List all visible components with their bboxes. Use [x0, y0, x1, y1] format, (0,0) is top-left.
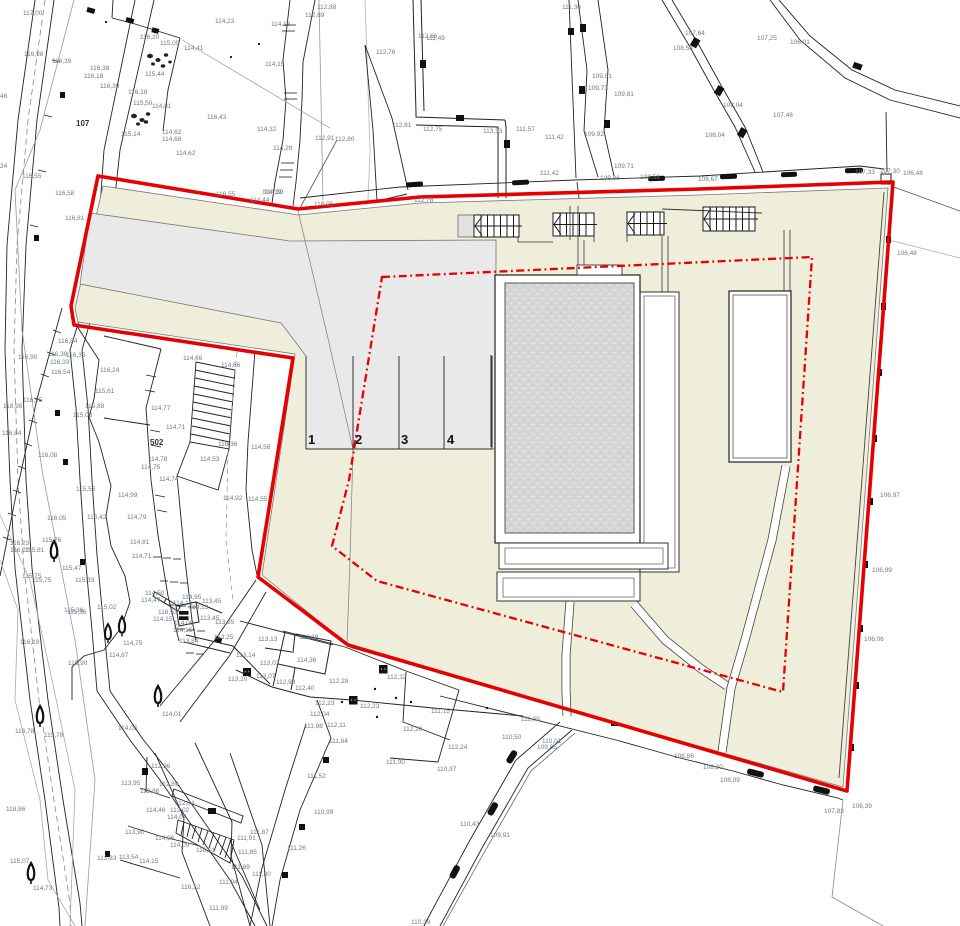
svg-text:115,33: 115,33 [75, 577, 95, 584]
svg-text:46: 46 [0, 93, 8, 100]
svg-text:114,41: 114,41 [184, 45, 204, 52]
svg-text:114,36: 114,36 [297, 657, 317, 664]
svg-text:4: 4 [447, 432, 455, 447]
svg-text:114,55: 114,55 [248, 496, 268, 503]
svg-text:118,05: 118,05 [314, 201, 334, 208]
svg-text:111,94: 111,94 [219, 879, 238, 886]
svg-text:116,36: 116,36 [218, 441, 238, 448]
svg-text:106,99: 106,99 [872, 567, 892, 574]
svg-text:111,89: 111,89 [231, 864, 250, 871]
svg-text:115,90: 115,90 [68, 660, 88, 667]
svg-text:111,42: 111,42 [540, 170, 559, 177]
svg-text:114,78: 114,78 [148, 456, 168, 463]
svg-text:114,32: 114,32 [257, 126, 277, 133]
svg-text:112,11: 112,11 [327, 722, 346, 729]
svg-text:116,53: 116,53 [158, 609, 178, 616]
svg-text:114,71: 114,71 [166, 424, 186, 431]
svg-text:116,19: 116,19 [20, 639, 40, 646]
svg-text:109,73: 109,73 [588, 85, 608, 92]
svg-text:116,42: 116,42 [87, 514, 107, 521]
svg-text:116,58: 116,58 [55, 190, 75, 197]
svg-text:114,81: 114,81 [152, 103, 172, 110]
svg-text:112,91: 112,91 [315, 135, 335, 142]
svg-text:116,39: 116,39 [48, 351, 68, 358]
svg-text:106,48: 106,48 [897, 250, 917, 257]
svg-text:112,86: 112,86 [140, 788, 160, 795]
svg-text:113,95: 113,95 [121, 780, 141, 787]
svg-text:114,47: 114,47 [141, 597, 161, 604]
svg-text:110,99: 110,99 [314, 809, 334, 816]
svg-text:116,38: 116,38 [90, 65, 110, 72]
svg-text:114,15: 114,15 [153, 616, 173, 623]
svg-text:116,24: 116,24 [100, 367, 120, 374]
svg-text:107,33: 107,33 [855, 169, 875, 176]
svg-text:114,01: 114,01 [162, 711, 182, 718]
svg-text:106,48: 106,48 [903, 170, 923, 177]
svg-text:116,98: 116,98 [24, 51, 44, 58]
svg-text:111,52: 111,52 [307, 773, 326, 780]
svg-text:115,81: 115,81 [25, 547, 45, 554]
svg-text:114,13: 114,13 [271, 21, 291, 28]
svg-text:114,74: 114,74 [159, 476, 179, 483]
svg-text:1: 1 [308, 432, 315, 447]
svg-text:116,08: 116,08 [38, 452, 58, 459]
svg-text:114,77: 114,77 [151, 405, 171, 412]
svg-text:116,95: 116,95 [23, 397, 43, 404]
svg-text:107: 107 [76, 119, 90, 128]
svg-text:107,83: 107,83 [824, 808, 844, 815]
svg-text:115,75: 115,75 [22, 573, 42, 580]
svg-text:114,75: 114,75 [141, 464, 161, 471]
svg-text:106,97: 106,97 [880, 492, 900, 499]
svg-text:114,58: 114,58 [251, 444, 271, 451]
svg-text:116,33: 116,33 [50, 359, 70, 366]
svg-text:115,44: 115,44 [145, 71, 165, 78]
svg-text:114,92: 114,92 [223, 495, 243, 502]
svg-text:114,87: 114,87 [109, 652, 129, 659]
svg-text:115,07: 115,07 [10, 858, 30, 865]
svg-text:107,30: 107,30 [880, 168, 900, 175]
svg-text:115,47: 115,47 [62, 565, 82, 572]
svg-text:112,24: 112,24 [448, 744, 468, 751]
svg-text:112,20: 112,20 [403, 726, 423, 733]
svg-text:111,15: 111,15 [431, 708, 450, 715]
svg-text:109,85: 109,85 [537, 744, 557, 751]
svg-text:107,25: 107,25 [757, 35, 777, 42]
svg-text:113,07: 113,07 [256, 673, 276, 680]
svg-text:112,88: 112,88 [317, 4, 337, 11]
svg-text:113,54: 113,54 [119, 854, 139, 861]
svg-text:111,84: 111,84 [329, 738, 348, 745]
svg-text:112,96: 112,96 [151, 763, 171, 770]
svg-text:116,55: 116,55 [22, 173, 42, 180]
svg-text:114,53: 114,53 [200, 456, 220, 463]
svg-text:115,61: 115,61 [95, 388, 115, 395]
svg-text:116,84: 116,84 [2, 430, 22, 437]
svg-text:116,01: 116,01 [196, 847, 216, 854]
svg-text:116,78: 116,78 [15, 728, 35, 735]
svg-text:106,39: 106,39 [852, 803, 872, 810]
svg-text:113,84: 113,84 [179, 638, 199, 645]
svg-text:114,46: 114,46 [146, 807, 166, 814]
svg-text:114,75: 114,75 [123, 640, 143, 647]
svg-text:115,88: 115,88 [85, 403, 105, 410]
svg-text:111,26: 111,26 [287, 845, 306, 852]
svg-text:111,98: 111,98 [304, 723, 323, 730]
svg-text:113,83: 113,83 [97, 855, 117, 862]
svg-text:110,97: 110,97 [437, 766, 457, 773]
svg-text:109,81: 109,81 [614, 91, 634, 98]
svg-text:108,20: 108,20 [703, 764, 723, 771]
svg-text:110,50: 110,50 [502, 734, 522, 741]
svg-text:107,64: 107,64 [685, 30, 705, 37]
svg-text:116,35: 116,35 [66, 352, 86, 359]
svg-text:111,57: 111,57 [516, 126, 535, 133]
svg-text:111,09: 111,09 [521, 716, 540, 723]
svg-text:114,44: 114,44 [250, 197, 270, 204]
svg-text:114,15: 114,15 [139, 858, 159, 865]
svg-text:502: 502 [150, 438, 164, 447]
svg-text:116,43: 116,43 [207, 114, 227, 121]
svg-text:111,00: 111,00 [386, 759, 405, 766]
svg-text:109,81: 109,81 [592, 73, 612, 80]
svg-text:109,91: 109,91 [490, 832, 510, 839]
svg-text:115,02: 115,02 [97, 604, 117, 611]
svg-text:115,03: 115,03 [73, 412, 93, 419]
svg-text:115,53: 115,53 [76, 486, 96, 493]
svg-text:113,20: 113,20 [228, 676, 248, 683]
svg-text:112,02: 112,02 [170, 807, 190, 814]
svg-text:116,55: 116,55 [216, 191, 236, 198]
svg-text:112,89: 112,89 [305, 12, 325, 19]
svg-text:108,09: 108,09 [720, 777, 740, 784]
svg-text:24: 24 [0, 163, 8, 170]
svg-text:114,07: 114,07 [167, 814, 187, 821]
svg-text:115,14: 115,14 [121, 131, 141, 138]
svg-text:111,85: 111,85 [238, 849, 257, 856]
svg-text:106,01: 106,01 [790, 39, 810, 46]
svg-text:111,30: 111,30 [562, 4, 581, 11]
svg-text:114,38: 114,38 [299, 634, 319, 641]
svg-text:116,54: 116,54 [51, 369, 71, 376]
svg-text:113,25: 113,25 [214, 634, 234, 641]
svg-text:114,99: 114,99 [118, 492, 138, 499]
svg-text:116,84: 116,84 [58, 338, 78, 345]
svg-text:116,81: 116,81 [65, 215, 85, 222]
svg-text:114,73: 114,73 [33, 885, 53, 892]
svg-text:116,20: 116,20 [140, 34, 160, 41]
svg-text:116,12: 116,12 [181, 884, 201, 891]
svg-text:114,15: 114,15 [265, 61, 285, 68]
svg-text:113,25: 113,25 [215, 619, 235, 626]
svg-text:108,58: 108,58 [673, 45, 693, 52]
svg-text:112,75: 112,75 [423, 126, 443, 133]
svg-text:112,23: 112,23 [315, 700, 335, 707]
svg-text:114,29: 114,29 [273, 145, 293, 152]
svg-text:109,71: 109,71 [614, 163, 634, 170]
svg-text:112,78: 112,78 [414, 197, 434, 204]
svg-text:116,23: 116,23 [10, 540, 30, 547]
svg-text:112,40: 112,40 [295, 685, 315, 692]
svg-text:113,14: 113,14 [236, 652, 256, 659]
svg-text:116,39: 116,39 [100, 83, 120, 90]
svg-text:116,05: 116,05 [47, 515, 67, 522]
svg-text:109,86: 109,86 [600, 175, 620, 182]
svg-text:112,80: 112,80 [335, 136, 355, 143]
svg-text:108,67: 108,67 [698, 176, 718, 183]
svg-text:115,36: 115,36 [64, 607, 84, 614]
svg-text:115,09: 115,09 [160, 40, 180, 47]
svg-text:107,48: 107,48 [773, 112, 793, 119]
svg-text:114,15: 114,15 [173, 627, 193, 634]
svg-text:116,18: 116,18 [84, 73, 104, 80]
svg-text:112,04: 112,04 [175, 800, 195, 807]
svg-text:114,09: 114,09 [170, 842, 190, 849]
svg-text:114,71: 114,71 [132, 553, 152, 560]
svg-text:115,78: 115,78 [44, 732, 64, 739]
svg-text:111,42: 111,42 [545, 134, 564, 141]
svg-text:114,39: 114,39 [264, 189, 284, 196]
svg-text:112,81: 112,81 [392, 122, 412, 129]
svg-text:114,13: 114,13 [189, 604, 209, 611]
svg-text:112,89: 112,89 [159, 781, 179, 788]
svg-text:112,28: 112,28 [329, 678, 349, 685]
svg-text:112,23: 112,23 [360, 703, 380, 710]
svg-text:112,98: 112,98 [276, 679, 296, 686]
svg-text:118,86: 118,86 [6, 806, 26, 813]
svg-text:108,04: 108,04 [723, 102, 743, 109]
svg-text:113,03: 113,03 [260, 660, 280, 667]
svg-text:114,66: 114,66 [221, 362, 241, 369]
svg-text:108,04: 108,04 [705, 132, 725, 139]
svg-text:117,00: 117,00 [23, 10, 43, 17]
svg-text:115,76: 115,76 [42, 537, 62, 544]
svg-text:112,04: 112,04 [310, 711, 330, 718]
svg-text:114,62: 114,62 [176, 150, 196, 157]
svg-text:114,50: 114,50 [145, 590, 165, 597]
svg-text:114,08: 114,08 [174, 620, 194, 627]
svg-text:114,68: 114,68 [162, 136, 182, 143]
svg-text:115,50: 115,50 [133, 100, 153, 107]
svg-text:2: 2 [355, 432, 362, 447]
svg-text:118,98: 118,98 [3, 403, 23, 410]
svg-text:111,99: 111,99 [209, 905, 228, 912]
svg-text:114,79: 114,79 [127, 514, 147, 521]
svg-text:114,62: 114,62 [162, 129, 182, 136]
svg-text:109,92: 109,92 [584, 131, 604, 138]
svg-text:111,91: 111,91 [237, 835, 256, 842]
svg-text:111,80: 111,80 [252, 871, 271, 878]
svg-text:108,86: 108,86 [674, 753, 694, 760]
svg-text:114,81: 114,81 [130, 539, 150, 546]
svg-text:110,39: 110,39 [411, 919, 431, 926]
svg-text:116,90: 116,90 [18, 354, 38, 361]
svg-text:3: 3 [401, 432, 408, 447]
svg-text:113,90: 113,90 [125, 829, 145, 836]
svg-text:116,39: 116,39 [52, 58, 72, 65]
svg-text:114,06: 114,06 [155, 835, 175, 842]
svg-text:114,66: 114,66 [183, 355, 203, 362]
svg-text:112,76: 112,76 [376, 49, 396, 56]
svg-text:113,33: 113,33 [483, 128, 503, 135]
svg-text:116,18: 116,18 [128, 89, 148, 96]
svg-text:109,58: 109,58 [640, 174, 660, 181]
svg-text:110,43: 110,43 [460, 821, 480, 828]
svg-text:112,32: 112,32 [387, 674, 407, 681]
svg-text:114,05: 114,05 [118, 725, 138, 732]
svg-text:114,23: 114,23 [215, 18, 235, 25]
svg-text:106,06: 106,06 [864, 636, 884, 643]
svg-text:113,13: 113,13 [258, 636, 278, 643]
svg-text:111,49: 111,49 [426, 35, 445, 42]
